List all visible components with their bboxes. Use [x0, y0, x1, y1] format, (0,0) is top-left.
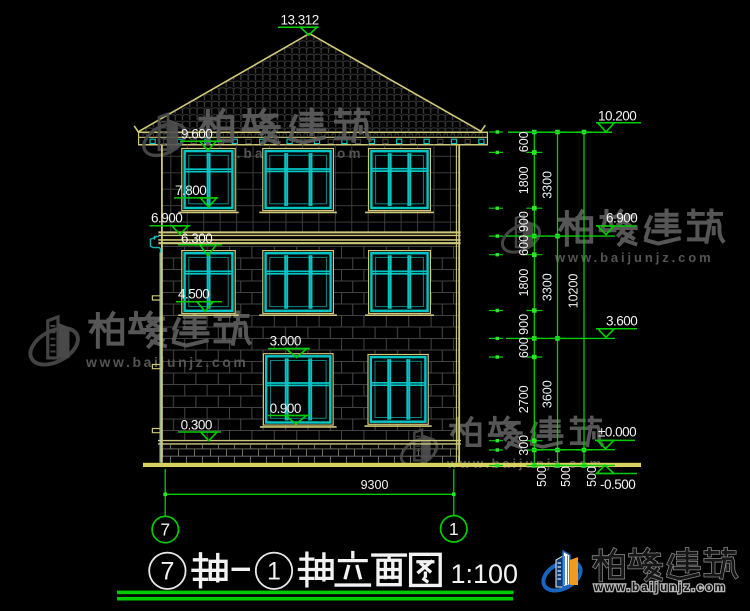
svg-text:500: 500 — [559, 466, 573, 487]
svg-text:3.000: 3.000 — [270, 334, 301, 349]
svg-text:600: 600 — [517, 337, 531, 358]
svg-text:4.500: 4.500 — [178, 287, 209, 302]
svg-text:500: 500 — [585, 466, 599, 487]
svg-text:1: 1 — [267, 558, 281, 586]
svg-text:1800: 1800 — [517, 166, 531, 194]
svg-text:9.600: 9.600 — [181, 127, 212, 142]
svg-text:3600: 3600 — [540, 380, 554, 408]
svg-text:7: 7 — [160, 558, 174, 586]
svg-text:±0.000: ±0.000 — [598, 425, 636, 440]
svg-text:900: 900 — [517, 211, 531, 232]
svg-text:500: 500 — [535, 466, 549, 487]
svg-text:300: 300 — [517, 435, 531, 456]
svg-text:10200: 10200 — [567, 274, 581, 309]
svg-text:600: 600 — [517, 235, 531, 256]
svg-text:900: 900 — [517, 314, 531, 335]
svg-text:3.600: 3.600 — [606, 313, 637, 328]
svg-text:www.baijunjz.com: www.baijunjz.com — [85, 354, 248, 370]
svg-text:1: 1 — [449, 519, 459, 539]
svg-text:0.300: 0.300 — [181, 417, 212, 432]
svg-text:7.800: 7.800 — [175, 183, 206, 198]
svg-text:3300: 3300 — [540, 273, 554, 301]
svg-text:13.312: 13.312 — [281, 13, 319, 28]
svg-text:-0.500: -0.500 — [600, 477, 635, 492]
svg-text:1:100: 1:100 — [451, 559, 519, 589]
svg-text:7: 7 — [160, 520, 170, 540]
svg-text:www.baijunjz.com: www.baijunjz.com — [554, 250, 714, 265]
svg-text:0.900: 0.900 — [270, 401, 301, 416]
svg-text:6.300: 6.300 — [181, 231, 212, 246]
svg-text:6.900: 6.900 — [606, 211, 637, 226]
svg-text:9300: 9300 — [361, 478, 389, 492]
svg-text:600: 600 — [517, 131, 531, 152]
svg-text:6.900: 6.900 — [151, 210, 182, 225]
svg-text:2700: 2700 — [517, 385, 531, 413]
svg-text:10.200: 10.200 — [598, 109, 636, 124]
svg-text:www.baijunjz.com: www.baijunjz.com — [593, 582, 727, 594]
svg-text:1800: 1800 — [517, 269, 531, 297]
svg-text:3300: 3300 — [540, 171, 554, 199]
